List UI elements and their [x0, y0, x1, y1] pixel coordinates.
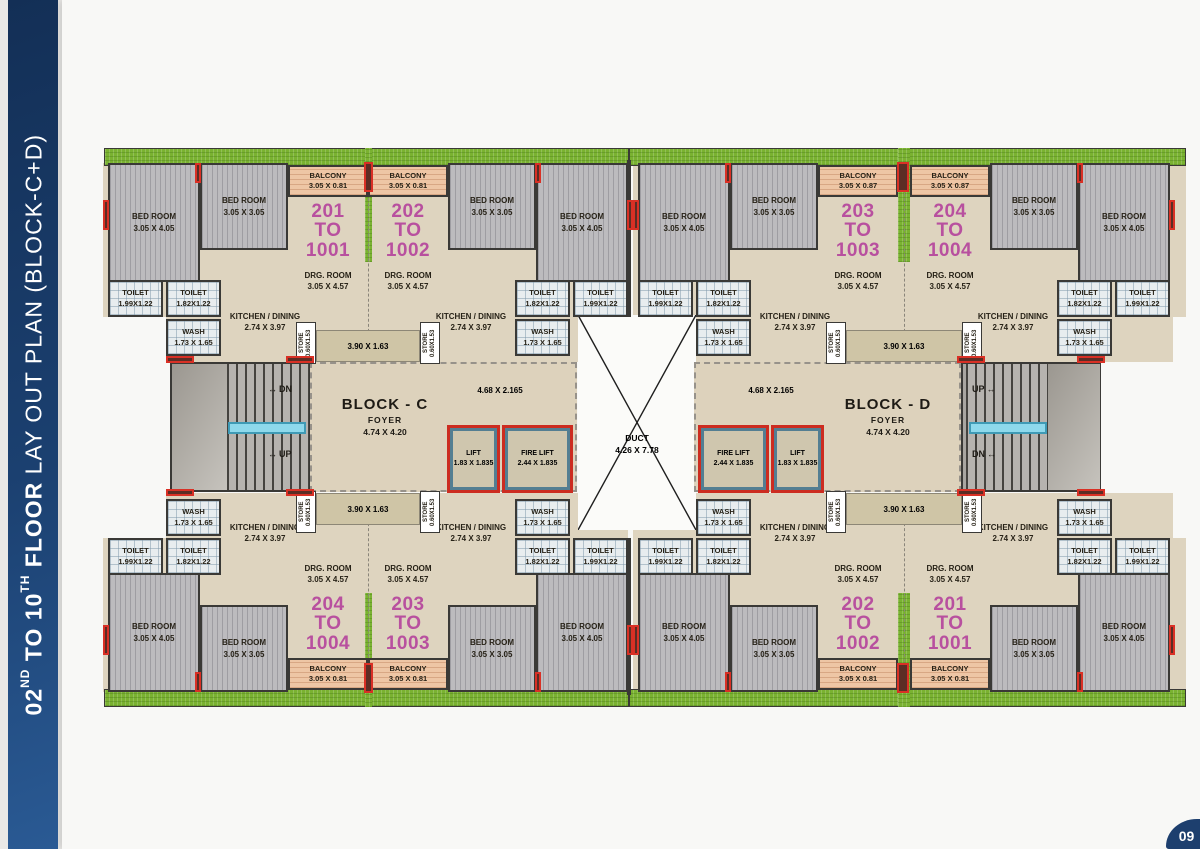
c-top-left-wall-accent: [195, 163, 201, 183]
d-bottom-left-store: STORE 0.60X1.53: [826, 491, 846, 533]
wall-accent: [286, 489, 314, 496]
c-bottom-right-balcony: BALCONY 3.05 X 0.81: [368, 658, 448, 690]
c-bottom-right-store: STORE 0.60X1.53: [420, 491, 440, 533]
d-bottom-right-drawing-room-label: DRG. ROOM 3.05 X 4.57: [910, 555, 990, 593]
d-top-right-drawing-room-label: DRG. ROOM 3.05 X 4.57: [910, 262, 990, 300]
d-top-left-toilet: TOILET 1.99X1.22: [638, 280, 693, 317]
d-top-left-balcony: BALCONY 3.05 X 0.87: [818, 165, 898, 197]
d-top-left-unit-number: 203 TO 1003: [818, 202, 898, 260]
d-top-left-toilet: TOILET 1.82X1.22: [696, 280, 751, 317]
wall-accent: [166, 489, 194, 496]
d-bottom-right-bedroom-small: BED ROOM 3.05 X 3.05: [990, 605, 1078, 692]
duct-shaft: DUCT 4.26 X 7.78: [578, 315, 696, 530]
c-bottom-right-drawing-room-label: DRG. ROOM 3.05 X 4.57: [368, 555, 448, 593]
d-bottom-left-bedroom-large: BED ROOM 3.05 X 4.05: [638, 573, 730, 692]
setback: [103, 492, 166, 538]
d-bottom-right-toilet: TOILET 1.82X1.22: [1057, 538, 1112, 575]
d-top-right-toilet: TOILET 1.99X1.22: [1115, 280, 1170, 317]
c-top-left-toilet: TOILET 1.99X1.22: [108, 280, 163, 317]
c-bottom-left-store: STORE 0.60X1.53: [296, 491, 316, 533]
c-bottom-left-drawing-room-label: DRG. ROOM 3.05 X 4.57: [288, 555, 368, 593]
block-c-staircase: [170, 362, 310, 492]
duct-label: DUCT 4.26 X 7.78: [578, 433, 696, 457]
d-top-right-balcony: BALCONY 3.05 X 0.87: [910, 165, 990, 197]
d-bottom-right-store: STORE 0.60X1.53: [962, 491, 982, 533]
stair-landing-area: [1048, 364, 1100, 490]
wall-accent: [957, 356, 985, 363]
d-top-right-wall-accent: [1169, 200, 1175, 230]
c-bottom-left-wall-accent: [103, 625, 109, 655]
c-top-left-wall-accent: [103, 200, 109, 230]
passage: 3.90 X 1.63: [316, 330, 420, 362]
c-bottom-right-bedroom-large: BED ROOM 3.05 X 4.05: [536, 573, 628, 692]
block-divider-wall: [627, 160, 631, 317]
d-top-left-bedroom-small: BED ROOM 3.05 X 3.05: [730, 163, 818, 250]
d-top-right-bedroom-large: BED ROOM 3.05 X 4.05: [1078, 163, 1170, 282]
setback: [1173, 492, 1186, 538]
c-bottom-left-bedroom-large: BED ROOM 3.05 X 4.05: [108, 573, 200, 692]
c-top-right-store: STORE 0.60X1.53: [420, 322, 440, 364]
d-bottom-right-bedroom-large: BED ROOM 3.05 X 4.05: [1078, 573, 1170, 692]
c-bottom-left-unit-number: 204 TO 1004: [288, 595, 368, 653]
d-bottom-right-toilet: TOILET 1.99X1.22: [1115, 538, 1170, 575]
floor-plan: DUCT 4.26 X 7.78 BLOCK - C FOYER 4.74 X …: [88, 140, 1200, 715]
d-bottom-right-balcony: BALCONY 3.05 X 0.81: [910, 658, 990, 690]
d-bottom-left-toilet: TOILET 1.99X1.22: [638, 538, 693, 575]
d-top-left-wall-accent: [725, 163, 731, 183]
c-bottom-left-wash: WASH 1.73 X 1.65: [166, 499, 221, 536]
sheet-title: 02ND TO 10TH FLOOR LAY OUT PLAN (BLOCK-C…: [18, 134, 48, 715]
d-top-right-wall-accent: [1077, 163, 1083, 183]
c-bottom-right-toilet: TOILET 1.82X1.22: [515, 538, 570, 575]
foyer-label: FOYER: [368, 415, 402, 425]
c-top-right-toilet: TOILET 1.82X1.22: [515, 280, 570, 317]
c-top-right-wash: WASH 1.73 X 1.65: [515, 319, 570, 356]
d-top-right-bedroom-small: BED ROOM 3.05 X 3.05: [990, 163, 1078, 250]
d-top-left-store: STORE 0.60X1.53: [826, 322, 846, 364]
c-top-right-unit-number: 202 TO 1002: [368, 202, 448, 260]
block-d-staircase: [961, 362, 1101, 492]
foyer-dim: 4.74 X 4.20: [363, 427, 406, 437]
wall-accent: [166, 356, 194, 363]
c-bottom-left-kitchen-dining-label: KITCHEN / DINING 2.74 X 3.97: [224, 516, 306, 550]
d-bottom-right-unit-number: 201 TO 1001: [910, 595, 990, 653]
wall-accent: [957, 489, 985, 496]
d-top-right-toilet: TOILET 1.82X1.22: [1057, 280, 1112, 317]
lift: LIFT 1.83 X 1.835: [450, 428, 497, 490]
block-divider-wall: [628, 689, 630, 707]
setback: [103, 317, 166, 363]
passage: 3.90 X 1.63: [846, 330, 962, 362]
stair-mid-landing: [228, 422, 306, 434]
wall-accent: [364, 162, 373, 192]
d-top-right-kitchen-dining-label: KITCHEN / DINING 2.74 X 3.97: [972, 305, 1054, 339]
stair-down-label: DN↔: [972, 449, 996, 459]
d-bottom-right-wall-accent: [1169, 625, 1175, 655]
c-bottom-left-toilet: TOILET 1.82X1.22: [166, 538, 221, 575]
c-bottom-left-balcony: BALCONY 3.05 X 0.81: [288, 658, 368, 690]
c-bottom-left-wall-accent: [195, 672, 201, 692]
d-bottom-left-wall-accent: [725, 672, 731, 692]
d-bottom-left-drawing-room-label: DRG. ROOM 3.05 X 4.57: [818, 555, 898, 593]
passage: 3.90 X 1.63: [846, 493, 962, 525]
c-top-left-balcony: BALCONY 3.05 X 0.81: [288, 165, 368, 197]
c-top-left-unit-number: 201 TO 1001: [288, 202, 368, 260]
stair-up-label: ↔UP: [268, 449, 292, 459]
c-top-left-drawing-room-label: DRG. ROOM 3.05 X 4.57: [288, 262, 368, 300]
d-top-left-wall-accent: [633, 200, 639, 230]
block-d-label: BLOCK - D FOYER 4.74 X 4.20: [823, 396, 953, 437]
foyer-label: FOYER: [871, 415, 905, 425]
block-c-label: BLOCK - C FOYER 4.74 X 4.20: [320, 396, 450, 437]
d-top-right-unit-number: 204 TO 1004: [910, 202, 990, 260]
passage: 3.90 X 1.63: [316, 493, 420, 525]
setback: [1173, 317, 1186, 363]
c-bottom-left-toilet: TOILET 1.99X1.22: [108, 538, 163, 575]
c-bottom-right-unit-number: 203 TO 1003: [368, 595, 448, 653]
wall-accent: [1077, 489, 1105, 496]
block-divider-wall: [627, 538, 631, 695]
stair-direction-arrow-icon: ↔: [268, 384, 277, 394]
c-bottom-right-bedroom-small: BED ROOM 3.05 X 3.05: [448, 605, 536, 692]
lift-lobby-dim: 4.68 X 2.165: [454, 383, 546, 397]
c-top-right-wall-accent: [535, 163, 541, 183]
c-top-left-toilet: TOILET 1.82X1.22: [166, 280, 221, 317]
wall-accent: [897, 663, 909, 693]
block-name: BLOCK - D: [845, 396, 932, 413]
c-top-right-kitchen-dining-label: KITCHEN / DINING 2.74 X 3.97: [430, 305, 512, 339]
wall-accent: [897, 162, 909, 192]
wall-accent: [364, 663, 373, 693]
block-name: BLOCK - C: [342, 396, 429, 413]
c-bottom-right-wall-accent: [535, 672, 541, 692]
stair-mid-landing: [969, 422, 1047, 434]
c-top-right-drawing-room-label: DRG. ROOM 3.05 X 4.57: [368, 262, 448, 300]
c-bottom-right-wash: WASH 1.73 X 1.65: [515, 499, 570, 536]
d-bottom-right-wash: WASH 1.73 X 1.65: [1057, 499, 1112, 536]
c-top-left-kitchen-dining-label: KITCHEN / DINING 2.74 X 3.97: [224, 305, 306, 339]
stair-landing-area: [172, 364, 227, 490]
stair-down-label: ↔DN: [268, 384, 292, 394]
d-top-left-kitchen-dining-label: KITCHEN / DINING 2.74 X 3.97: [754, 305, 836, 339]
duct-cross-icon: [578, 315, 696, 530]
stair-direction-arrow-icon: ↔: [268, 449, 277, 459]
stair-direction-arrow-icon: ↔: [987, 449, 996, 459]
c-bottom-right-kitchen-dining-label: KITCHEN / DINING 2.74 X 3.97: [430, 516, 512, 550]
d-bottom-left-wash: WASH 1.73 X 1.65: [696, 499, 751, 536]
block-divider-wall: [628, 148, 630, 166]
d-bottom-left-wall-accent: [633, 625, 639, 655]
title-band: 02ND TO 10TH FLOOR LAY OUT PLAN (BLOCK-C…: [8, 0, 58, 849]
c-bottom-right-toilet: TOILET 1.99X1.22: [573, 538, 628, 575]
d-bottom-left-unit-number: 202 TO 1002: [818, 595, 898, 653]
foyer-dim: 4.74 X 4.20: [866, 427, 909, 437]
d-bottom-right-wall-accent: [1077, 672, 1083, 692]
c-top-left-bedroom-large: BED ROOM 3.05 X 4.05: [108, 163, 200, 282]
c-top-left-bedroom-small: BED ROOM 3.05 X 3.05: [200, 163, 288, 250]
d-bottom-right-kitchen-dining-label: KITCHEN / DINING 2.74 X 3.97: [972, 516, 1054, 550]
fire-lift: FIRE LIFT 2.44 X 1.835: [701, 428, 766, 490]
stair-direction-arrow-icon: ↔: [987, 384, 996, 394]
lift-lobby-dim: 4.68 X 2.165: [725, 383, 817, 397]
d-bottom-left-kitchen-dining-label: KITCHEN / DINING 2.74 X 3.97: [754, 516, 836, 550]
d-top-right-wash: WASH 1.73 X 1.65: [1057, 319, 1112, 356]
d-top-left-drawing-room-label: DRG. ROOM 3.05 X 4.57: [818, 262, 898, 300]
d-top-left-wash: WASH 1.73 X 1.65: [696, 319, 751, 356]
c-bottom-left-bedroom-small: BED ROOM 3.05 X 3.05: [200, 605, 288, 692]
d-top-left-bedroom-large: BED ROOM 3.05 X 4.05: [638, 163, 730, 282]
d-bottom-left-toilet: TOILET 1.82X1.22: [696, 538, 751, 575]
wall-accent: [286, 356, 314, 363]
d-bottom-left-bedroom-small: BED ROOM 3.05 X 3.05: [730, 605, 818, 692]
stair-up-label: UP↔: [972, 384, 996, 394]
c-top-right-bedroom-large: BED ROOM 3.05 X 4.05: [536, 163, 628, 282]
c-top-right-balcony: BALCONY 3.05 X 0.81: [368, 165, 448, 197]
c-top-left-wash: WASH 1.73 X 1.65: [166, 319, 221, 356]
c-top-right-toilet: TOILET 1.99X1.22: [573, 280, 628, 317]
fire-lift: FIRE LIFT 2.44 X 1.835: [505, 428, 570, 490]
c-top-right-bedroom-small: BED ROOM 3.05 X 3.05: [448, 163, 536, 250]
wall-accent: [1077, 356, 1105, 363]
d-bottom-left-balcony: BALCONY 3.05 X 0.81: [818, 658, 898, 690]
lift: LIFT 1.83 X 1.835: [774, 428, 821, 490]
